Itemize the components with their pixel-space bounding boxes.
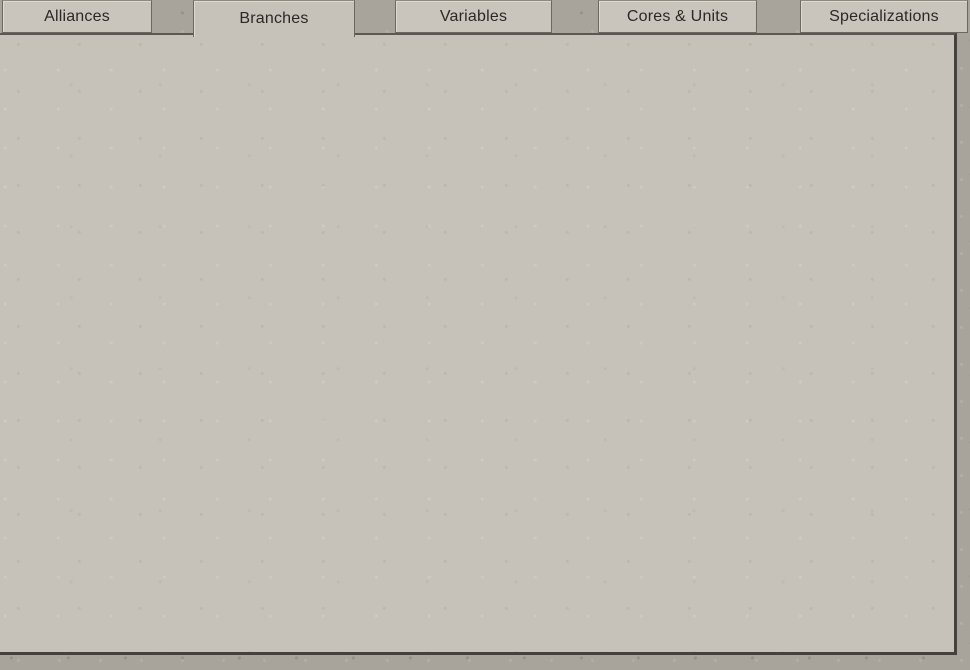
content-panel	[0, 33, 957, 655]
tab-branches[interactable]: Branches	[193, 0, 355, 37]
tab-label: Specializations	[829, 8, 939, 26]
tab-cores-units[interactable]: Cores & Units	[598, 0, 757, 33]
tab-label: Cores & Units	[627, 8, 728, 26]
tab-label: Alliances	[44, 8, 110, 26]
tab-specializations[interactable]: Specializations	[800, 0, 968, 33]
tab-label: Variables	[440, 8, 507, 26]
branch-editor-window: { "tabs": [ { "label": "Alliances", "sel…	[0, 0, 970, 670]
tab-alliances[interactable]: Alliances	[2, 0, 152, 33]
tab-variables[interactable]: Variables	[395, 0, 552, 33]
tab-label: Branches	[239, 10, 308, 28]
